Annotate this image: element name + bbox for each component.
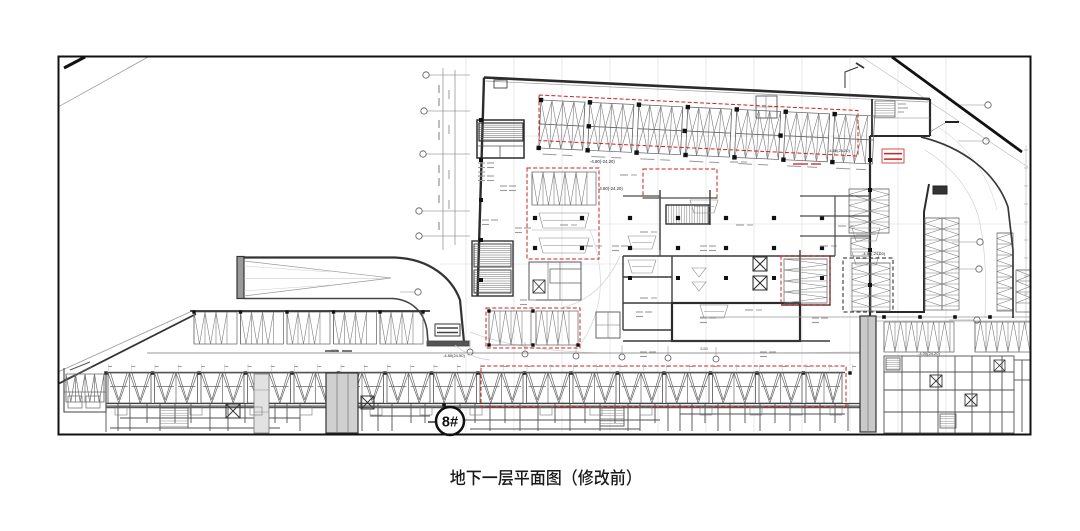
- svg-text:4575: 4575: [330, 349, 338, 353]
- svg-text:8#: 8#: [442, 415, 458, 431]
- svg-text:-4.00(24.20): -4.00(24.20): [918, 351, 940, 356]
- svg-text:3150: 3150: [700, 347, 708, 351]
- svg-text:-4.80(-24.20): -4.80(-24.20): [862, 251, 886, 256]
- svg-text:-4.80(-24.20): -4.80(-24.20): [590, 159, 615, 164]
- svg-text:-4.80(-24.20): -4.80(-24.20): [598, 186, 623, 191]
- svg-text:-4.80(24.20): -4.80(24.20): [828, 148, 850, 153]
- svg-text:-4.80(24.50): -4.80(24.50): [443, 353, 465, 358]
